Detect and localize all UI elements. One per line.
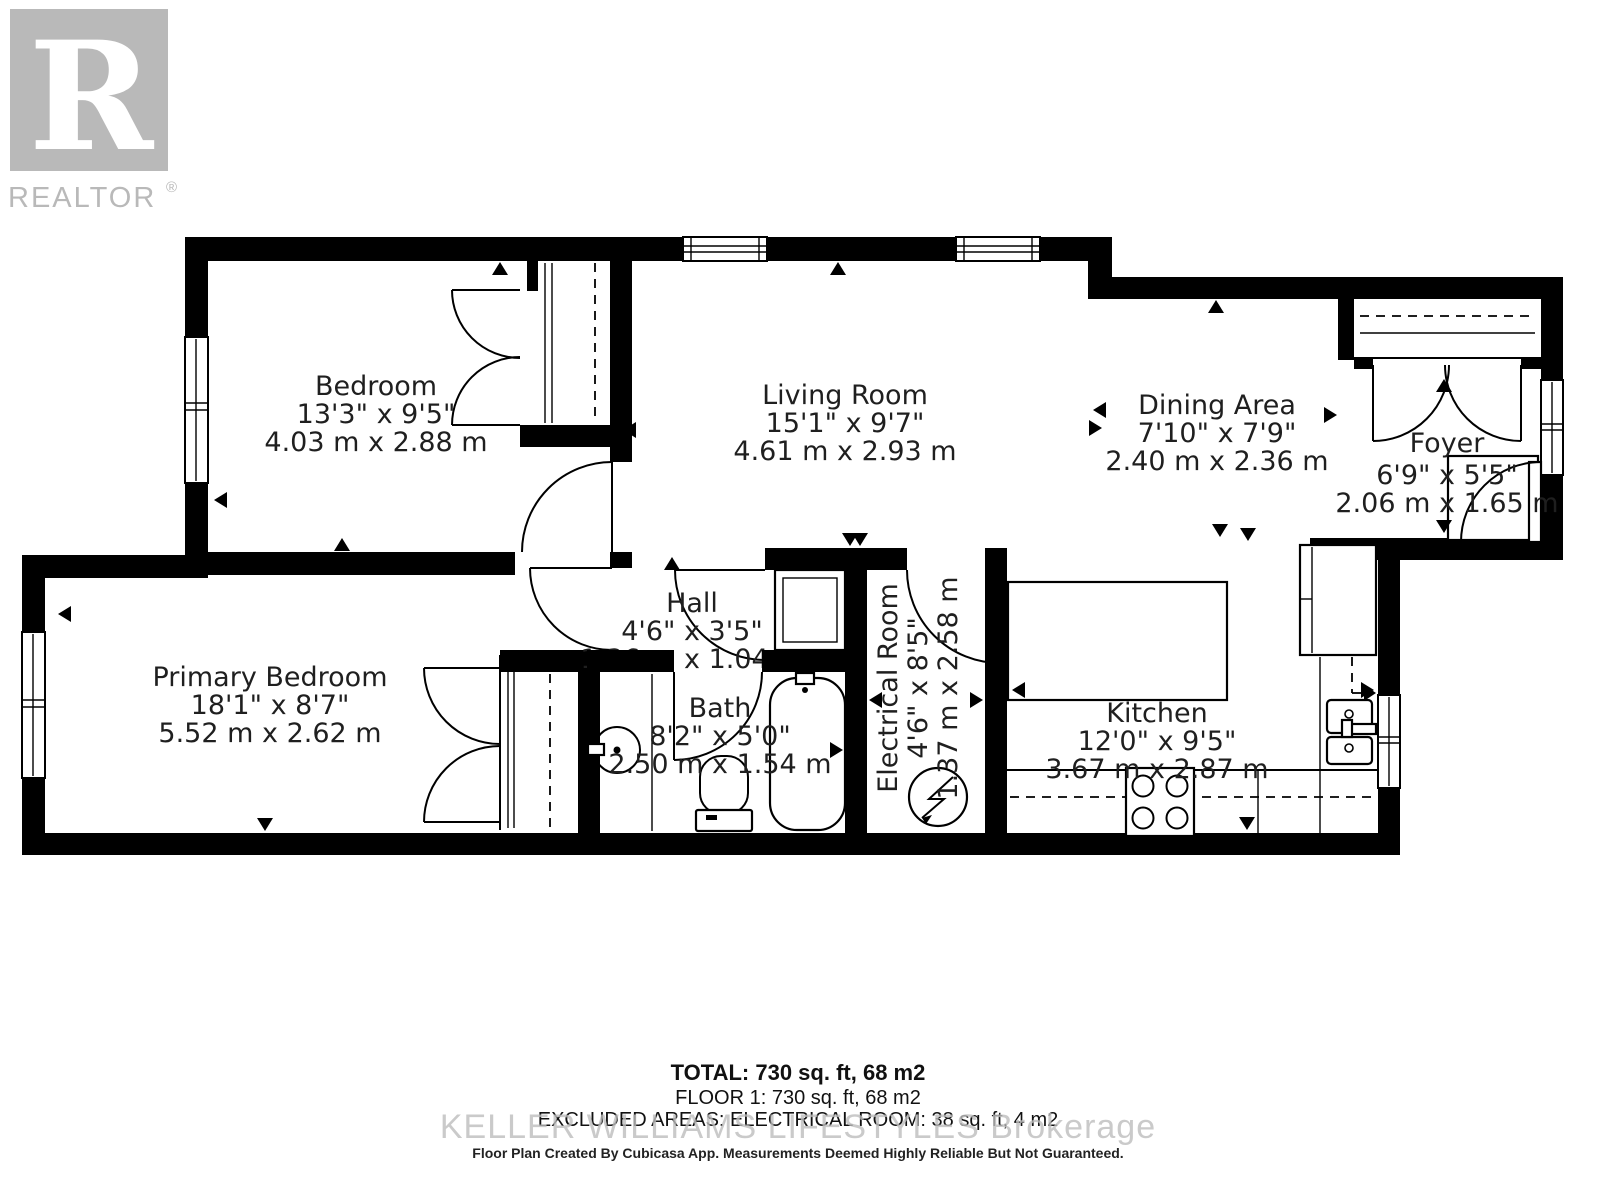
room-name: Bath bbox=[689, 693, 752, 724]
wall-segment bbox=[587, 650, 674, 672]
wall-segment bbox=[22, 555, 208, 578]
wall-segment bbox=[185, 552, 515, 575]
disclaimer-text: Floor Plan Created By Cubicasa App. Meas… bbox=[472, 1145, 1123, 1161]
window bbox=[185, 337, 208, 483]
window bbox=[1541, 380, 1563, 475]
room-name: Primary Bedroom bbox=[152, 662, 387, 693]
dimension-arrow bbox=[1436, 379, 1452, 392]
floor-area-text: FLOOR 1: 730 sq. ft, 68 m2 bbox=[675, 1087, 921, 1109]
wall-segment bbox=[1354, 358, 1373, 369]
room-dim-metric: 5.52 m x 2.62 m bbox=[158, 718, 381, 749]
window bbox=[22, 632, 45, 778]
wall-segment bbox=[610, 552, 632, 568]
wall-segment bbox=[527, 261, 538, 291]
primary-closet bbox=[500, 655, 550, 830]
shower bbox=[775, 570, 845, 650]
room-name: Living Room bbox=[762, 380, 928, 411]
bedroom-door bbox=[522, 462, 612, 552]
dimension-arrow bbox=[1093, 402, 1106, 418]
room-name: Hall bbox=[666, 588, 718, 619]
room-dim-metric: 1.37 m x 2.58 m bbox=[933, 576, 964, 799]
room-dim-imperial: 4'6" x 8'5" bbox=[903, 617, 934, 759]
room-dim-metric: 4.03 m x 2.88 m bbox=[264, 427, 487, 458]
window bbox=[683, 237, 767, 261]
realtor-logo: R REALTOR ® bbox=[8, 9, 177, 214]
dimension-arrow bbox=[970, 692, 983, 708]
dimension-arrow bbox=[58, 606, 71, 622]
room-name: Kitchen bbox=[1106, 698, 1207, 729]
dimension-arrow bbox=[334, 538, 350, 551]
dimension-arrow bbox=[214, 492, 227, 508]
window bbox=[956, 237, 1040, 261]
wall-segment bbox=[1088, 277, 1563, 299]
window bbox=[1378, 695, 1400, 788]
wall-segment bbox=[845, 548, 867, 833]
footer: TOTAL: 730 sq. ft, 68 m2 FLOOR 1: 730 sq… bbox=[440, 1060, 1156, 1161]
room-dim-imperial: 18'1" x 8'7" bbox=[191, 690, 350, 721]
wall-segment bbox=[762, 650, 845, 672]
room-dim-metric: 2.06 m x 1.65 m bbox=[1335, 488, 1558, 519]
dimension-arrow bbox=[257, 818, 273, 831]
bedroom-closet bbox=[545, 263, 595, 423]
room-label-kitchen: Kitchen 12'0" x 9'5" 3.67 m x 2.87 m bbox=[1045, 698, 1268, 785]
floor-plan-canvas: R REALTOR ® bbox=[0, 0, 1600, 1200]
dimension-arrow bbox=[1239, 817, 1255, 830]
primary-closet-doors bbox=[424, 668, 500, 822]
room-name: Dining Area bbox=[1138, 390, 1296, 421]
dimension-arrow bbox=[1089, 420, 1102, 436]
room-dim-imperial: 8'2" x 5'0" bbox=[649, 721, 791, 752]
room-label-electrical: Electrical Room 4'6" x 8'5" 1.37 m x 2.5… bbox=[873, 576, 964, 799]
dimension-arrow bbox=[830, 262, 846, 275]
room-dim-metric: 2.50 m x 1.54 m bbox=[608, 749, 831, 780]
room-dim-metric: 3.67 m x 2.87 m bbox=[1045, 754, 1268, 785]
dimension-arrow bbox=[1324, 407, 1337, 423]
dimension-arrow bbox=[664, 557, 680, 570]
foyer-closet bbox=[1354, 316, 1541, 358]
wall-segment bbox=[1338, 299, 1354, 360]
room-name: Electrical Room bbox=[873, 583, 904, 793]
fridge bbox=[1300, 545, 1376, 655]
wall-segment bbox=[985, 548, 1007, 833]
bedroom-closet-doors bbox=[452, 290, 520, 425]
wall-segment bbox=[520, 425, 632, 447]
wall-segment bbox=[765, 548, 907, 570]
room-dim-metric: 2.40 m x 2.36 m bbox=[1105, 446, 1328, 477]
room-label-bedroom: Bedroom 13'3" x 9'5" 4.03 m x 2.88 m bbox=[264, 371, 487, 458]
brokerage-watermark: KELLER WILLIAMS LIFESTYLES Brokerage bbox=[440, 1108, 1156, 1146]
room-dim-imperial: 6'9" x 5'5" bbox=[1376, 460, 1518, 491]
room-dim-imperial: 4'6" x 3'5" bbox=[621, 616, 763, 647]
realtor-logo-mark: R bbox=[29, 9, 155, 185]
registered-trademark-icon: ® bbox=[166, 179, 177, 196]
dimension-arrow bbox=[1208, 300, 1224, 313]
dimension-arrow bbox=[492, 262, 508, 275]
kitchen-island bbox=[1008, 582, 1227, 700]
room-dim-imperial: 15'1" x 9'7" bbox=[766, 408, 925, 439]
dimension-arrow bbox=[1212, 524, 1228, 537]
room-label-living: Living Room 15'1" x 9'7" 4.61 m x 2.93 m bbox=[733, 380, 956, 467]
kitchen-sink bbox=[1327, 700, 1376, 764]
room-name: Foyer bbox=[1410, 428, 1486, 459]
wall-segment bbox=[1521, 358, 1541, 369]
room-label-primary: Primary Bedroom 18'1" x 8'7" 5.52 m x 2.… bbox=[152, 662, 387, 749]
room-dim-imperial: 13'3" x 9'5" bbox=[297, 399, 456, 430]
room-dim-metric: 4.61 m x 2.93 m bbox=[733, 436, 956, 467]
realtor-logo-text: REALTOR bbox=[8, 182, 156, 214]
room-dim-imperial: 7'10" x 7'9" bbox=[1138, 418, 1297, 449]
dimension-arrow bbox=[852, 533, 868, 546]
room-name: Bedroom bbox=[315, 371, 437, 402]
primary-bedroom-door bbox=[530, 568, 612, 650]
room-dim-imperial: 12'0" x 9'5" bbox=[1078, 726, 1237, 757]
dimension-arrow bbox=[1240, 528, 1256, 541]
wall-segment bbox=[500, 650, 578, 672]
total-area-text: TOTAL: 730 sq. ft, 68 m2 bbox=[671, 1060, 926, 1085]
room-label-dining: Dining Area 7'10" x 7'9" 2.40 m x 2.36 m bbox=[1105, 390, 1328, 477]
